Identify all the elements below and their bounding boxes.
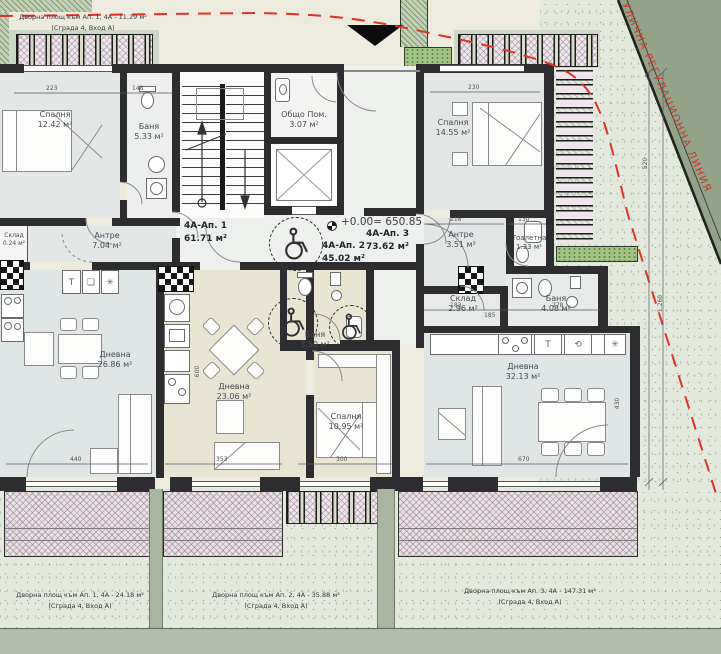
apartment-label-ap1: 4А-Ап. 1 61.71 м² xyxy=(184,220,227,246)
caption-line1: Дворна площ към Ап. 2, 4А - 35.88 м² xyxy=(196,590,356,601)
wheelchair-icon xyxy=(338,313,364,341)
room-label-ap2-bedroom: Спалня 10.95 м² xyxy=(314,412,378,433)
burner-icon xyxy=(14,297,21,304)
room-name: Антре xyxy=(76,231,138,241)
sink-icon xyxy=(148,156,165,173)
room-area: 23.06 м² xyxy=(198,392,270,402)
room-area: 14.55 м² xyxy=(424,128,482,138)
entrance-threshold xyxy=(344,70,420,72)
dimension-label: 278 xyxy=(552,302,563,309)
terrace-step-line xyxy=(164,540,282,541)
burner-icon xyxy=(4,322,12,330)
toilet-icon xyxy=(298,278,312,296)
elevator-wall xyxy=(264,136,344,144)
burner-icon xyxy=(4,297,12,305)
room-name: Спалня xyxy=(314,412,378,422)
room-label-ap1-bedroom: Спалня 12.42 м² xyxy=(22,110,88,131)
masonry-block xyxy=(158,266,194,292)
yard-caption-ap3: Дворна площ към Ап. 3, 4А - 147.31 м² (С… xyxy=(440,586,620,608)
room-name: Тоалетна xyxy=(505,234,553,243)
bed-pillow-line xyxy=(16,110,17,172)
pier xyxy=(0,477,26,491)
dimension-label: 670 xyxy=(518,456,529,463)
wall xyxy=(172,64,180,212)
armchair xyxy=(90,448,118,474)
wall xyxy=(450,210,554,218)
room-name: Дневна xyxy=(488,362,558,372)
wheelchair-icon xyxy=(279,307,308,338)
sofa-line xyxy=(130,394,131,474)
wheelchair-icon xyxy=(280,227,312,261)
chair xyxy=(60,318,77,331)
sidewalk-band xyxy=(0,628,721,654)
dimension-label: 130 xyxy=(518,216,529,223)
dimension-label: 1.260 xyxy=(657,295,664,312)
wall xyxy=(336,64,344,143)
masonry-block xyxy=(0,260,24,290)
armchair xyxy=(438,408,466,440)
kitchen-unit-stove2: ✳ xyxy=(604,334,626,355)
chair xyxy=(564,388,582,402)
room-name: Спалня xyxy=(22,110,88,120)
caption-line2: (Сграда 4, Вход А) xyxy=(0,601,160,612)
bed xyxy=(472,102,542,166)
wall xyxy=(306,395,314,478)
burner-icon xyxy=(168,378,176,386)
dimension-label: 185 xyxy=(484,312,495,319)
room-area: 26.86 м² xyxy=(80,360,150,370)
room-area: 32.13 м² xyxy=(488,372,558,382)
wall xyxy=(364,208,416,216)
caption-line1: Дворна площ към Ап. 3, 4А - 147.31 м² xyxy=(440,586,620,597)
sink-basin-icon xyxy=(279,84,287,95)
wall xyxy=(0,218,86,226)
apartment-name: 4А-Ап. 2 xyxy=(322,240,365,253)
caption-line2: (Сграда 4, Вход А) xyxy=(440,597,620,608)
fence-panels-bottom xyxy=(286,491,378,524)
kitchen-unit-dishwasher: ⟲ xyxy=(564,334,592,355)
kitchen-unit-inner xyxy=(169,329,185,342)
pier xyxy=(170,477,192,491)
kitchen-unit xyxy=(164,350,190,372)
dimension-label: 183 xyxy=(450,302,461,309)
chair xyxy=(541,442,559,456)
terrace-step-line xyxy=(399,540,637,541)
burner-icon xyxy=(178,388,186,396)
apartment-area: 45.02 м² xyxy=(322,253,365,266)
yard-caption-ap2: Дворна площ към Ап. 2, 4А - 35.88 м² (Сг… xyxy=(196,590,356,612)
apartment-name: 4А-Ап. 3 xyxy=(366,228,409,241)
room-name: Дневна xyxy=(80,350,150,360)
chair xyxy=(587,442,605,456)
bed-pillow-line xyxy=(488,102,489,166)
yard-caption-top: Дворна площ към Ап. 1, 4А - 11.29 м² (Сг… xyxy=(8,12,158,34)
wall xyxy=(544,64,554,218)
window-south xyxy=(26,481,117,487)
wall xyxy=(630,333,640,477)
floor-plan-canvas: УЛИЧНА РЕГУЛАЦИОННА ЛИНИЯ xyxy=(0,0,721,654)
stair-landing xyxy=(196,88,244,120)
room-label-ap1-storage: Склад 0.24 м² xyxy=(0,232,28,248)
wall xyxy=(506,266,608,274)
apartment-name: 4А-Ап. 1 xyxy=(184,220,227,233)
sink-basin-icon xyxy=(169,299,185,315)
window-ap1-bedroom xyxy=(24,65,112,72)
dimension-label: 148 xyxy=(132,85,143,92)
wall xyxy=(424,286,460,294)
wall-party-1-2 xyxy=(156,262,164,478)
window-south xyxy=(192,481,260,487)
corridor-ap2 xyxy=(374,270,416,344)
room-area: 5.33 м² xyxy=(126,132,172,142)
room-area: 3.51 м² xyxy=(432,240,490,250)
burner-icon xyxy=(521,337,528,344)
kitchen-unit-stove: ✳ xyxy=(101,270,119,294)
room-label-ap3-bedroom: Спалня 14.55 м² xyxy=(424,118,482,139)
chair xyxy=(60,366,77,379)
room-label-ap3-toilet: Тоалетна 1.33 м² xyxy=(505,234,553,252)
room-area: 1.33 м² xyxy=(505,243,553,252)
washer-drum-icon xyxy=(150,182,163,195)
level-symbol xyxy=(327,221,337,231)
dimension-label: 230 xyxy=(468,84,479,91)
nightstand xyxy=(452,102,468,116)
terrace-ap3 xyxy=(398,491,638,557)
terrace-step-line xyxy=(399,528,637,529)
room-label-common: Общо Пом. 3.07 м² xyxy=(274,110,334,131)
apartment-area: 73.62 м² xyxy=(366,241,409,254)
wall xyxy=(92,262,164,270)
dimension-label: 223 xyxy=(46,85,57,92)
wall xyxy=(416,244,424,348)
pier xyxy=(600,477,637,491)
terrace-step-line xyxy=(5,540,149,541)
armchair xyxy=(216,400,244,434)
chair xyxy=(541,388,559,402)
elevator-wall xyxy=(337,136,344,215)
entrance-marker xyxy=(347,25,403,46)
terrace-ap2 xyxy=(163,491,283,557)
dimension-label: 440 xyxy=(70,456,81,463)
sofa-line xyxy=(482,386,483,466)
room-name: Дневна xyxy=(198,382,270,392)
burner-icon xyxy=(502,337,509,344)
masonry-block xyxy=(458,266,484,294)
kitchen-unit-sink: Т xyxy=(534,334,562,355)
terrace-step-line xyxy=(164,528,282,529)
room-name: Склад xyxy=(0,232,28,240)
room-area: 12.42 м² xyxy=(22,120,88,130)
shower-icon xyxy=(570,276,581,289)
closet xyxy=(376,354,391,474)
caption-line1: Дворна площ към Ап. 1, 4А - 11.29 м² xyxy=(8,12,158,23)
dimension-label: 600 xyxy=(194,366,201,377)
window-south xyxy=(300,481,370,487)
caption-line2: (Сграда 4, Вход А) xyxy=(8,23,158,34)
kitchen-unit-sink: Т xyxy=(62,270,81,294)
terrace-step-line xyxy=(5,528,149,529)
wall xyxy=(112,218,180,226)
room-name: Баня xyxy=(126,122,172,132)
elevator-door xyxy=(292,206,316,215)
toilet-tank-icon xyxy=(297,272,313,278)
window-ap3-bedroom xyxy=(440,65,524,72)
room-label-ap1-living: Дневна 26.86 м² xyxy=(80,350,150,371)
yard-caption-ap1: Дворна площ към Ап. 1, 4А - 24.18 м² (Сг… xyxy=(0,590,160,612)
elevator-wall xyxy=(264,136,271,215)
wall-party-2b-3 xyxy=(392,344,400,478)
terrace-ap1 xyxy=(4,491,150,557)
room-name: Антре xyxy=(432,230,490,240)
wall xyxy=(598,266,608,333)
caption-line1: Дворна площ към Ап. 1, 4А - 24.18 м² xyxy=(0,590,160,601)
stove-icon xyxy=(1,318,24,342)
closet xyxy=(318,354,382,368)
dimension-label: 218 xyxy=(450,216,461,223)
shower-icon xyxy=(330,272,341,286)
room-area: 3.07 м² xyxy=(274,120,334,130)
apartment-area: 61.71 м² xyxy=(184,233,227,246)
apartment-label-ap3: 4А-Ап. 3 73.62 м² xyxy=(366,228,409,254)
room-name: Склад xyxy=(434,294,492,304)
pier xyxy=(260,477,300,491)
toilet-icon xyxy=(141,92,154,109)
dimension-label: 430 xyxy=(614,398,621,409)
sofa xyxy=(118,394,152,474)
room-area: 0.24 м² xyxy=(0,240,28,248)
room-label-ap3-hall: Антре 3.51 м² xyxy=(432,230,490,251)
caption-line2: (Сграда 4, Вход А) xyxy=(196,601,356,612)
kitchen-unit-hob: ❏ xyxy=(82,270,100,294)
wall xyxy=(0,64,24,73)
chair xyxy=(82,318,99,331)
nightstand xyxy=(452,152,468,166)
wall xyxy=(416,64,424,214)
dimension-label: 353 xyxy=(216,456,227,463)
sofa xyxy=(472,386,502,466)
room-name: Общо Пом. xyxy=(274,110,334,120)
room-label-ap3-living: Дневна 32.13 м² xyxy=(488,362,558,383)
window-south xyxy=(498,481,600,487)
room-area: 10.95 м² xyxy=(314,422,378,432)
pier xyxy=(448,477,498,491)
window-south xyxy=(423,481,448,487)
dimension-label: 520 xyxy=(642,158,649,169)
apartment-label-ap2: 4А-Ап. 2 45.02 м² xyxy=(322,240,365,266)
dimension-label: 300 xyxy=(336,456,347,463)
room-label-ap1-bath: Баня 5.33 м² xyxy=(126,122,172,143)
burner-icon xyxy=(512,345,519,352)
room-area: 7.04 м² xyxy=(76,241,138,251)
room-label-ap1-hall: Антре 7.04 м² xyxy=(76,231,138,252)
room-label-ap2-living: Дневна 23.06 м² xyxy=(198,382,270,403)
chair xyxy=(587,388,605,402)
drain-icon xyxy=(331,290,342,301)
sink-basin-icon xyxy=(516,282,528,294)
wall xyxy=(424,326,640,333)
burner-icon xyxy=(14,323,21,330)
elevator-cab-inner xyxy=(276,149,332,201)
room-name: Спалня xyxy=(424,118,482,128)
level-mark: +0.00= 650.85 xyxy=(341,216,422,228)
room-area: 3.50 м² xyxy=(290,340,340,350)
dining-table xyxy=(538,402,606,442)
bench xyxy=(24,332,54,366)
chair xyxy=(564,442,582,456)
